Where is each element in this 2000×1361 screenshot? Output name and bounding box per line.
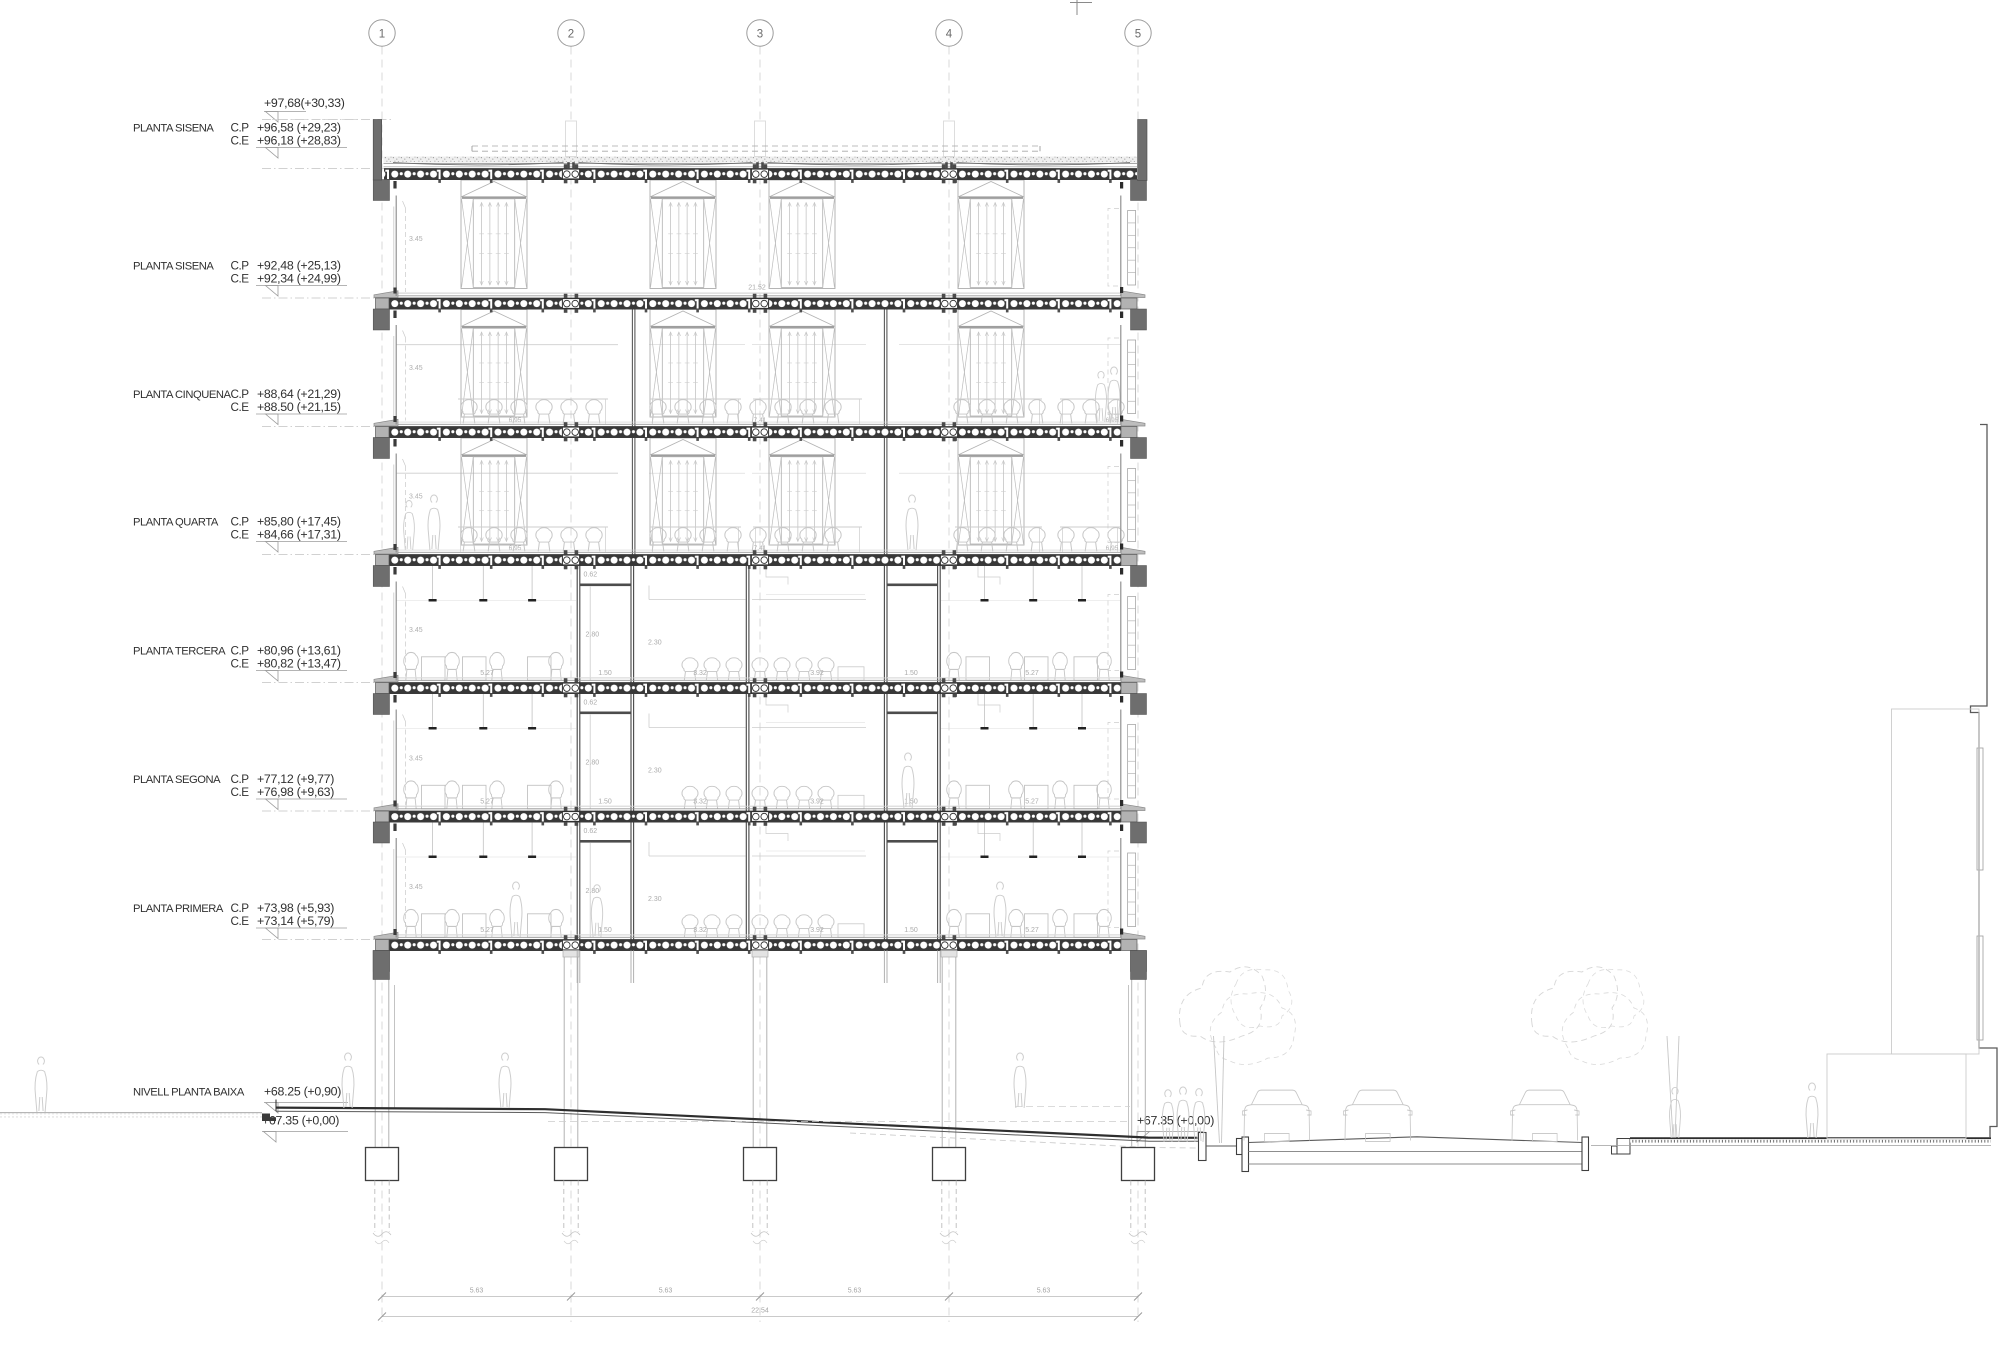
svg-text:PLANTA QUARTA: PLANTA QUARTA xyxy=(133,517,219,529)
svg-text:+88.50 (+21,15): +88.50 (+21,15) xyxy=(257,400,341,414)
svg-text:C.E: C.E xyxy=(231,786,250,799)
svg-text:C.P: C.P xyxy=(231,902,250,915)
svg-text:5.27: 5.27 xyxy=(480,670,494,677)
svg-text:3.32: 3.32 xyxy=(693,927,707,934)
svg-text:PLANTA SISENA: PLANTA SISENA xyxy=(133,123,214,135)
svg-text:3.45: 3.45 xyxy=(409,884,423,891)
svg-text:2.80: 2.80 xyxy=(586,888,600,895)
svg-text:C.E: C.E xyxy=(231,135,250,148)
svg-text:0.62: 0.62 xyxy=(584,828,598,835)
svg-text:5.27: 5.27 xyxy=(480,798,494,805)
svg-text:3.45: 3.45 xyxy=(409,365,423,372)
svg-text:1.50: 1.50 xyxy=(904,927,918,934)
svg-text:3.92: 3.92 xyxy=(810,798,824,805)
svg-text:+73,14 (+5,79): +73,14 (+5,79) xyxy=(257,914,334,928)
svg-text:5.27: 5.27 xyxy=(480,927,494,934)
svg-text:C.E: C.E xyxy=(231,658,250,671)
svg-text:5.27: 5.27 xyxy=(1025,927,1039,934)
svg-text:0.62: 0.62 xyxy=(584,572,598,579)
svg-text:1.50: 1.50 xyxy=(904,670,918,677)
svg-text:+68.25 (+0,90): +68.25 (+0,90) xyxy=(264,1085,341,1099)
svg-text:3.45: 3.45 xyxy=(409,236,423,243)
svg-text:+85,80 (+17,45): +85,80 (+17,45) xyxy=(257,515,341,529)
svg-text:+67.35 (+0,00): +67.35 (+0,00) xyxy=(1137,1114,1214,1128)
svg-text:+84,66 (+17,31): +84,66 (+17,31) xyxy=(257,528,341,542)
svg-text:C.E: C.E xyxy=(231,915,250,928)
svg-text:+77,12 (+9,77): +77,12 (+9,77) xyxy=(257,772,334,786)
svg-text:PLANTA TERCERA: PLANTA TERCERA xyxy=(133,646,226,658)
svg-text:+80,82 (+13,47): +80,82 (+13,47) xyxy=(257,657,341,671)
svg-text:1.50: 1.50 xyxy=(598,798,612,805)
svg-text:1: 1 xyxy=(379,29,385,41)
svg-text:C.P: C.P xyxy=(231,122,250,135)
svg-text:21.52: 21.52 xyxy=(748,285,766,292)
svg-text:+80,96 (+13,61): +80,96 (+13,61) xyxy=(257,644,341,658)
svg-text:C.E: C.E xyxy=(231,401,250,414)
svg-text:1.50: 1.50 xyxy=(598,927,612,934)
svg-text:6,95: 6,95 xyxy=(509,417,522,424)
svg-text:+76,98 (+9,63): +76,98 (+9,63) xyxy=(257,785,334,799)
svg-text:PLANTA PRIMERA: PLANTA PRIMERA xyxy=(133,903,224,915)
svg-text:C.P: C.P xyxy=(231,516,250,529)
svg-text:NIVELL PLANTA BAIXA: NIVELL PLANTA BAIXA xyxy=(133,1087,245,1099)
svg-text:6,95: 6,95 xyxy=(509,545,522,552)
svg-text:0.62: 0.62 xyxy=(584,700,598,707)
svg-text:C.P: C.P xyxy=(231,645,250,658)
svg-text:3.45: 3.45 xyxy=(409,755,423,762)
svg-text:5.63: 5.63 xyxy=(470,1288,484,1295)
svg-text:3.92: 3.92 xyxy=(810,670,824,677)
svg-text:5.27: 5.27 xyxy=(1025,670,1039,677)
svg-text:5.63: 5.63 xyxy=(659,1288,673,1295)
svg-text:PLANTA SISENA: PLANTA SISENA xyxy=(133,261,214,273)
svg-text:2.80: 2.80 xyxy=(586,760,600,767)
svg-text:PLANTA SEGONA: PLANTA SEGONA xyxy=(133,774,221,786)
svg-text:2: 2 xyxy=(568,29,574,41)
svg-text:5.63: 5.63 xyxy=(848,1288,862,1295)
svg-text:2.30: 2.30 xyxy=(648,896,662,903)
svg-text:22.54: 22.54 xyxy=(751,1308,769,1315)
svg-text:3.32: 3.32 xyxy=(693,798,707,805)
svg-text:2.30: 2.30 xyxy=(648,640,662,647)
svg-text:+88,64 (+21,29): +88,64 (+21,29) xyxy=(257,387,341,401)
svg-text:3.92: 3.92 xyxy=(810,927,824,934)
svg-text:C.P: C.P xyxy=(231,388,250,401)
svg-text:2.30: 2.30 xyxy=(648,768,662,775)
svg-text:+73,98 (+5,93): +73,98 (+5,93) xyxy=(257,901,334,915)
svg-text:C.P: C.P xyxy=(231,773,250,786)
svg-text:3.32: 3.32 xyxy=(693,670,707,677)
svg-text:5.63: 5.63 xyxy=(1037,1288,1051,1295)
svg-text:+97,68(+30,33): +97,68(+30,33) xyxy=(264,96,345,110)
svg-text:+96,18 (+28,83): +96,18 (+28,83) xyxy=(257,134,341,148)
svg-text:1.50: 1.50 xyxy=(598,670,612,677)
svg-text:6,95: 6,95 xyxy=(1106,545,1119,552)
svg-text:C.E: C.E xyxy=(231,529,250,542)
svg-text:3.45: 3.45 xyxy=(409,627,423,634)
svg-text:4: 4 xyxy=(946,29,953,41)
svg-text:C.P: C.P xyxy=(231,260,250,273)
svg-text:2.80: 2.80 xyxy=(586,632,600,639)
svg-text:3.45: 3.45 xyxy=(409,493,423,500)
svg-text:5.27: 5.27 xyxy=(1025,798,1039,805)
svg-text:5: 5 xyxy=(1135,29,1141,41)
svg-text:+92,48 (+25,13): +92,48 (+25,13) xyxy=(257,259,341,273)
svg-text:C.E: C.E xyxy=(231,273,250,286)
svg-text:+96,58 (+29,23): +96,58 (+29,23) xyxy=(257,121,341,135)
svg-text:3: 3 xyxy=(757,29,763,41)
svg-text:PLANTA CINQUENA: PLANTA CINQUENA xyxy=(133,389,231,401)
svg-text:+92,34 (+24,99): +92,34 (+24,99) xyxy=(257,272,341,286)
